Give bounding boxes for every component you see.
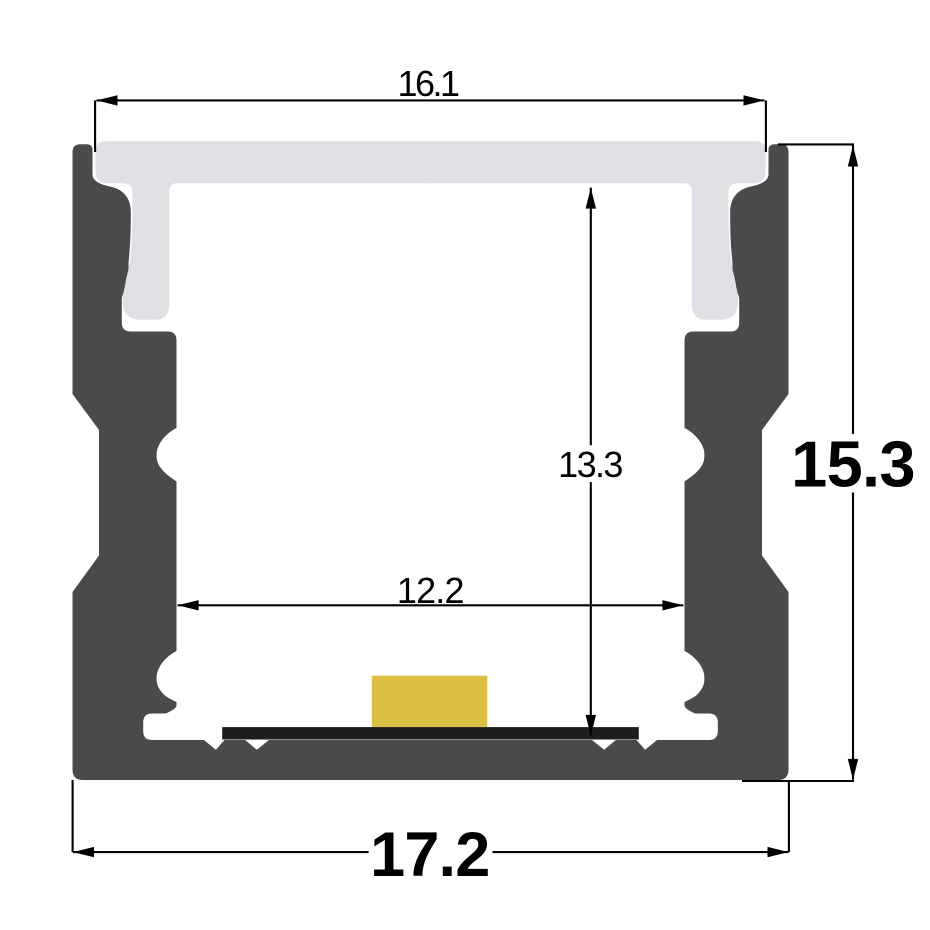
svg-text:15.3: 15.3: [791, 428, 915, 501]
svg-text:12.2: 12.2: [397, 570, 464, 611]
svg-text:13.3: 13.3: [558, 444, 622, 485]
svg-text:16.1: 16.1: [397, 63, 459, 104]
svg-text:17.2: 17.2: [370, 820, 489, 890]
